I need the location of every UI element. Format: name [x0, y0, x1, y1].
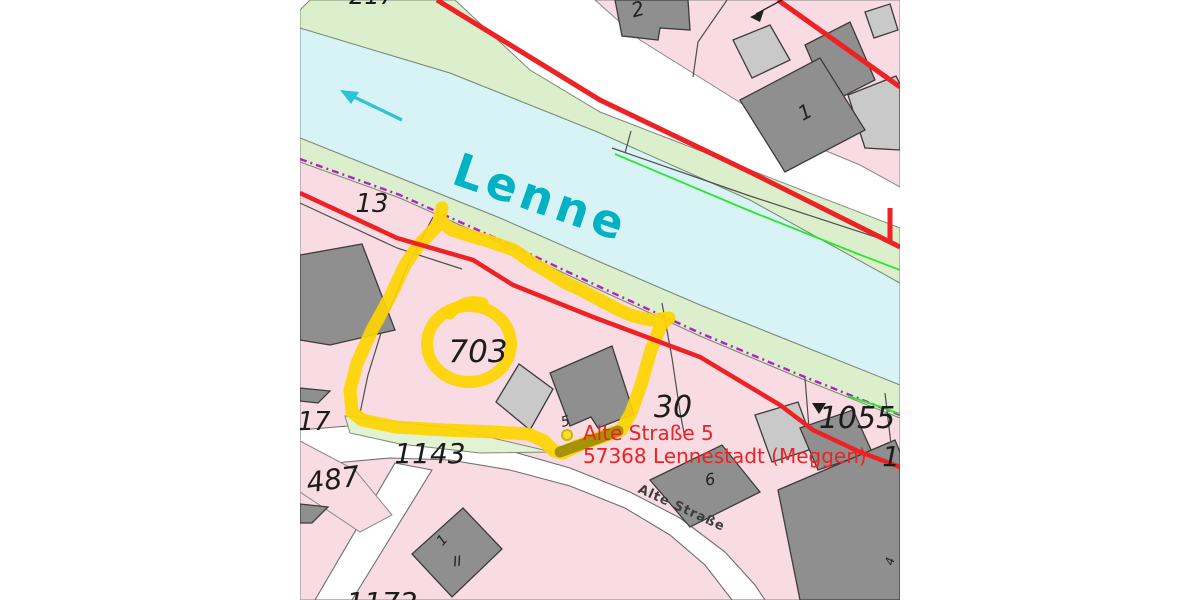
map-canvas: 13 703 30 1055 1143 17 487 1172 217 13 2… — [300, 0, 900, 600]
parcel-label-1055: 1055 — [819, 401, 895, 436]
parcel-label-30: 30 — [654, 390, 692, 425]
address-line2: 57368 Lennestadt (Meggen) — [583, 444, 867, 468]
parcel-label-217-partial: 217 — [349, 0, 396, 10]
parcel-label-13: 13 — [355, 189, 388, 219]
parcel-label-703: 703 — [448, 334, 507, 370]
parcel-label-17: 17 — [300, 407, 331, 437]
parcel-label-1143: 1143 — [394, 437, 465, 470]
parcel-label-13-right-partial: 13 — [882, 440, 900, 473]
screenshot: 13 703 30 1055 1143 17 487 1172 217 13 2… — [0, 0, 1200, 600]
address-line1: Alte Straße 5 — [583, 421, 714, 445]
cadastral-map[interactable]: 13 703 30 1055 1143 17 487 1172 217 13 2… — [300, 0, 900, 600]
parcel-label-1172: 1172 — [346, 586, 417, 600]
address-marker-dot — [562, 430, 572, 440]
